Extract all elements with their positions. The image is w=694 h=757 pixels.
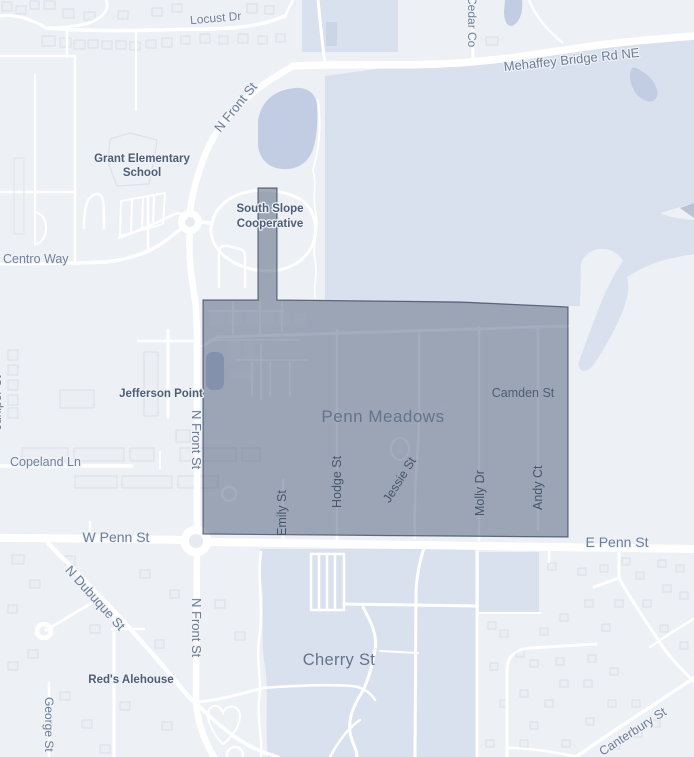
svg-text:N Front St: N Front St (189, 598, 204, 658)
svg-text:George St: George St (42, 697, 56, 752)
svg-text:Cedar Co: Cedar Co (465, 0, 479, 48)
svg-text:Juniper Ct: Juniper Ct (0, 375, 4, 430)
svg-text:E Penn St: E Penn St (585, 534, 648, 550)
svg-text:Copeland Ln: Copeland Ln (10, 455, 81, 469)
svg-text:Camden St: Camden St (492, 386, 555, 400)
svg-text:South Slope: South Slope (236, 203, 303, 215)
svg-text:Cooperative: Cooperative (237, 218, 303, 230)
svg-text:Hodge St: Hodge St (330, 455, 344, 508)
svg-text:Centro Way: Centro Way (3, 252, 69, 266)
svg-text:Molly Dr: Molly Dr (473, 470, 487, 516)
svg-text:Andy Ct: Andy Ct (531, 465, 545, 510)
svg-text:Penn Meadows: Penn Meadows (321, 407, 444, 426)
svg-text:School: School (123, 167, 161, 179)
svg-text:Cherry St: Cherry St (303, 651, 375, 669)
svg-text:W Penn St: W Penn St (83, 529, 150, 545)
svg-text:Grant Elementary: Grant Elementary (94, 153, 190, 165)
svg-text:Jefferson Point: Jefferson Point (119, 388, 203, 400)
svg-text:N Front St: N Front St (189, 410, 204, 470)
svg-text:Emily St: Emily St (275, 490, 289, 536)
svg-text:Red's Alehouse: Red's Alehouse (88, 674, 173, 686)
